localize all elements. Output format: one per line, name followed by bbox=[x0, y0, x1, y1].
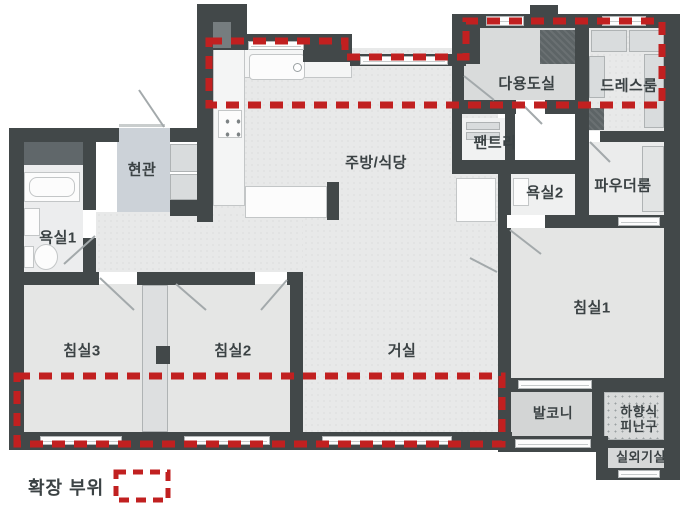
bathtub bbox=[24, 172, 80, 202]
toilet-tank bbox=[24, 246, 34, 268]
wall bbox=[83, 138, 96, 210]
refrigerator bbox=[456, 178, 496, 222]
wall bbox=[9, 128, 24, 450]
wall bbox=[170, 200, 212, 216]
legend-label: 확장 부위 bbox=[28, 474, 104, 500]
window bbox=[322, 436, 452, 445]
wall bbox=[137, 272, 255, 285]
room-label-outdoor-unit: 실외기실 bbox=[616, 451, 666, 466]
window bbox=[486, 16, 524, 26]
room-label-bedroom2: 침실2 bbox=[214, 342, 251, 359]
window bbox=[40, 436, 122, 445]
wall bbox=[156, 346, 170, 364]
wall bbox=[575, 131, 589, 215]
room-label-entrance: 현관 bbox=[128, 161, 157, 178]
wall bbox=[83, 238, 96, 274]
kitchen-island-counter bbox=[245, 186, 327, 218]
room-label-living: 거실 bbox=[388, 342, 417, 359]
room-label-bath2: 욕실2 bbox=[526, 184, 563, 201]
kitchen-faucet-icon bbox=[293, 63, 302, 72]
wall bbox=[9, 128, 119, 142]
wall bbox=[498, 215, 507, 228]
wall bbox=[545, 100, 580, 114]
wall bbox=[530, 5, 558, 16]
room-label-evacuation: 하향식 피난구 bbox=[620, 405, 657, 435]
window bbox=[602, 16, 646, 26]
wall bbox=[452, 100, 516, 114]
wall bbox=[197, 4, 213, 222]
room-label-powder: 파우더룸 bbox=[594, 177, 651, 194]
room-label-pantry: 팬트리 bbox=[474, 134, 517, 151]
window bbox=[618, 470, 660, 478]
wall bbox=[592, 390, 604, 442]
wall bbox=[596, 440, 680, 448]
toilet-icon bbox=[34, 244, 58, 270]
wall bbox=[290, 272, 303, 450]
wall bbox=[498, 160, 511, 215]
window bbox=[184, 436, 270, 445]
wall bbox=[9, 272, 99, 285]
room-label-kitchen: 주방/식당 bbox=[345, 154, 407, 171]
room-label-bedroom1: 침실1 bbox=[573, 299, 610, 316]
room-label-dressroom: 드레스룸 bbox=[600, 77, 657, 94]
wall bbox=[303, 34, 352, 62]
window bbox=[518, 380, 592, 389]
wall bbox=[664, 14, 680, 480]
wall bbox=[452, 160, 589, 174]
wall bbox=[600, 131, 664, 142]
entrance-threshold bbox=[119, 124, 165, 127]
room-label-utility: 다용도실 bbox=[498, 75, 555, 92]
legend-dashed-box bbox=[116, 472, 168, 500]
shoe-cabinet-lower bbox=[170, 174, 198, 200]
washing-machine bbox=[540, 30, 578, 64]
wall bbox=[452, 114, 462, 160]
pantry-shelf-1 bbox=[466, 122, 500, 130]
room-label-balcony: 발코니 bbox=[533, 405, 573, 421]
wall bbox=[327, 182, 339, 220]
cooktop-icon bbox=[218, 110, 242, 138]
wall bbox=[170, 128, 212, 142]
floor-plan: 현관욕실1침실3침실2거실주방/식당다용도실드레스룸팬트리욕실2파우더룸침실1발… bbox=[0, 0, 695, 512]
shoe-cabinet-upper bbox=[170, 144, 198, 172]
window bbox=[248, 41, 304, 50]
room-label-bedroom3: 침실3 bbox=[63, 342, 100, 359]
wardrobe-top-2 bbox=[629, 30, 664, 52]
room-label-bath1: 욕실1 bbox=[39, 229, 76, 246]
wardrobe-top-1 bbox=[591, 30, 627, 52]
window bbox=[360, 56, 448, 65]
wall bbox=[498, 228, 511, 450]
window bbox=[515, 439, 591, 448]
bath1-sink bbox=[24, 208, 40, 236]
window bbox=[618, 217, 660, 226]
